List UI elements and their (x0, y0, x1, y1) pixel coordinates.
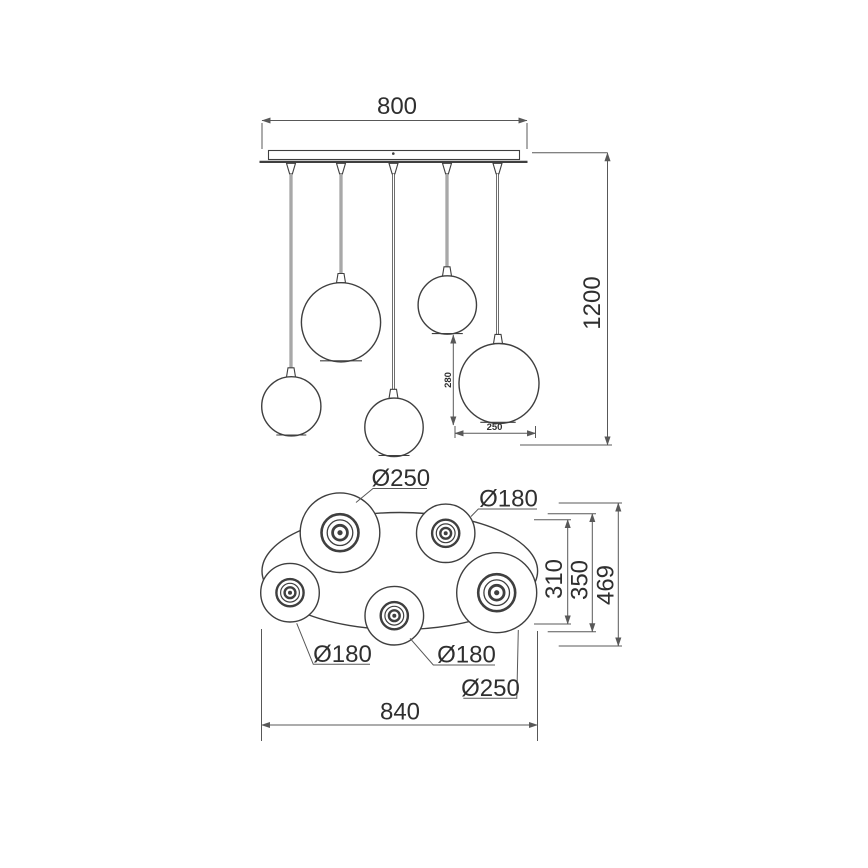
cord-grip (287, 163, 296, 174)
cord-grip (389, 163, 398, 174)
lamp-circle-right (457, 553, 537, 633)
label-d180-top-right: Ø180 (471, 486, 538, 517)
canopy (260, 151, 528, 174)
dim-globe-width: 250 (455, 422, 536, 438)
side-view: 800 (260, 93, 613, 456)
d250-top-text: Ø250 (371, 465, 430, 492)
d250-right-text: Ø250 (461, 675, 520, 702)
dim-canopy-width: 800 (262, 93, 527, 149)
canopy-center-dot (392, 152, 395, 155)
total-height-label: 1200 (579, 276, 606, 329)
dim-310: 310 (534, 520, 571, 624)
cord-grip (337, 163, 346, 174)
globe-height-label: 280 (443, 372, 454, 388)
pendant-globe-4-small (418, 267, 476, 334)
lamp-circle-middle (365, 586, 424, 645)
pendant-globe-5-large (459, 334, 539, 423)
label-d180-middle: Ø180 (410, 638, 496, 668)
lamp-circle-top-right (417, 504, 475, 562)
top-view: Ø250 Ø180 Ø180 Ø180 Ø250 310 (261, 465, 622, 741)
canopy-width-label: 800 (377, 93, 417, 120)
globe-width-label: 250 (487, 422, 503, 433)
pendant-globe-1-small (262, 368, 321, 436)
label-d180-left: Ø180 (297, 623, 372, 668)
lamp-circle-left (261, 563, 320, 622)
technical-drawing: 800 (0, 0, 868, 868)
lamp-circle-top-left (300, 493, 380, 573)
label-d250-top: Ø250 (356, 465, 430, 503)
dim-840-text: 840 (380, 699, 420, 726)
canopy-plate (269, 151, 520, 160)
dim-469-text: 469 (593, 565, 620, 605)
d180-left-text: Ø180 (313, 641, 372, 668)
pendant-globe-2-large (301, 274, 380, 362)
d180-top-right-text: Ø180 (479, 486, 538, 513)
cord-grip (443, 163, 452, 174)
d180-middle-text: Ø180 (437, 642, 496, 669)
dim-350-text: 350 (567, 560, 594, 600)
dim-310-text: 310 (541, 559, 568, 599)
pendant-globe-3-small (365, 389, 423, 456)
dim-globe-height: 280 (443, 335, 454, 425)
cord-grip (493, 163, 502, 174)
